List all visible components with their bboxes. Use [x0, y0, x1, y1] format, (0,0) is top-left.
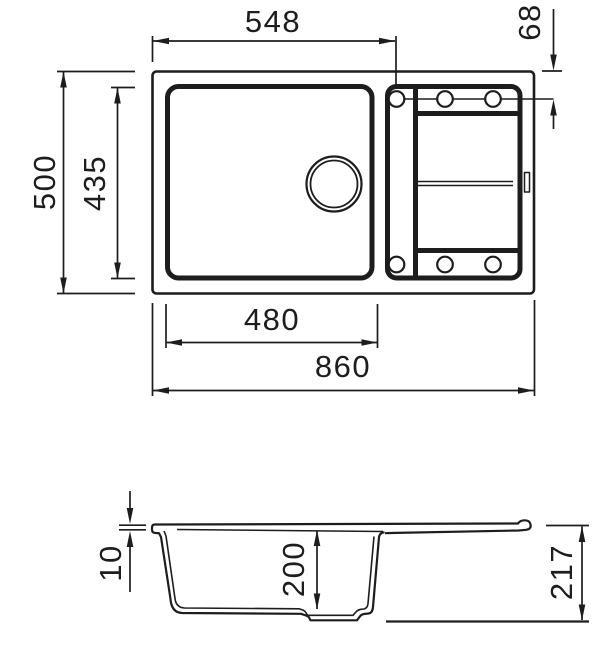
dimension-10: 10: [93, 491, 146, 592]
dim-label-500: 500: [27, 154, 62, 210]
arrowhead-icon: [579, 526, 586, 542]
dimension-217: 217: [544, 526, 589, 621]
arrowhead-icon: [166, 339, 182, 346]
dim-label-860: 860: [315, 349, 371, 384]
top-view: 548 68 500 435: [27, 3, 562, 396]
arrowhead-icon: [579, 605, 586, 621]
bowl-outer-profile: [152, 525, 385, 621]
arrowhead-icon: [314, 530, 321, 546]
tap-hole: [389, 91, 405, 107]
arrowhead-icon: [153, 38, 169, 45]
dim-label-435: 435: [77, 155, 112, 211]
tap-hole: [389, 257, 405, 273]
arrowhead-icon: [518, 387, 534, 394]
arrowhead-icon: [379, 38, 395, 45]
tap-hole: [437, 91, 453, 107]
dim-label-480: 480: [244, 302, 300, 337]
sink-dimension-drawing: 548 68 500 435: [0, 0, 607, 652]
dimension-200: 200: [276, 530, 320, 610]
dim-label-68: 68: [512, 3, 547, 40]
sink-outer-edge: [153, 72, 535, 294]
arrowhead-icon: [362, 339, 378, 346]
overflow-slot: [525, 173, 530, 193]
dim-label-217: 217: [544, 544, 579, 600]
arrowhead-icon: [60, 278, 67, 294]
arrowhead-icon: [550, 100, 557, 116]
arrowhead-icon: [153, 387, 169, 394]
dim-label-200: 200: [276, 541, 311, 597]
bowl-inner-profile: [164, 531, 374, 615]
dimension-435: 435: [77, 88, 135, 279]
drain-hole-inner: [311, 161, 358, 208]
technical-drawing-page: { "drawing": { "subject": "Kitchen sink …: [0, 0, 607, 652]
tap-hole: [437, 257, 453, 273]
dim-label-548: 548: [245, 4, 301, 39]
dimension-548: 548: [153, 4, 397, 86]
dim-label-10: 10: [93, 544, 128, 581]
drain-hole-outer: [307, 157, 362, 212]
arrowhead-icon: [550, 55, 557, 71]
arrowhead-icon: [314, 594, 321, 610]
side-section-view: 10 200 217: [93, 491, 589, 622]
arrowhead-icon: [114, 263, 121, 279]
arrowhead-icon: [127, 508, 134, 524]
arrowhead-icon: [60, 72, 67, 88]
tap-hole: [485, 91, 501, 107]
rim-inner-edge-line: [177, 530, 383, 532]
dimension-860: 860: [153, 300, 535, 396]
tap-hole: [485, 257, 501, 273]
arrowhead-icon: [114, 88, 121, 104]
main-bowl: [168, 87, 373, 279]
dimension-480: 480: [166, 302, 378, 348]
